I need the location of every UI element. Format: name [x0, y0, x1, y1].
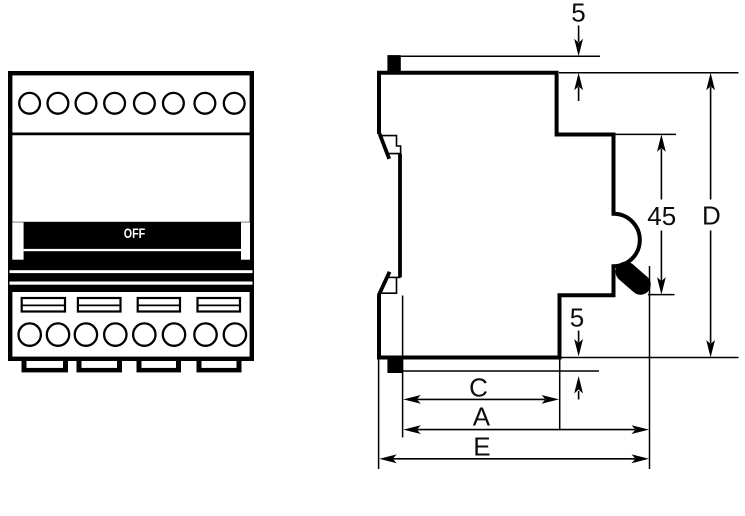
- svg-text:A: A: [473, 402, 491, 432]
- svg-text:D: D: [702, 201, 721, 231]
- svg-text:C: C: [469, 373, 488, 403]
- svg-text:OFF: OFF: [124, 226, 146, 241]
- svg-text:5: 5: [570, 303, 584, 333]
- svg-text:5: 5: [571, 0, 585, 28]
- svg-text:45: 45: [647, 201, 676, 231]
- svg-text:E: E: [473, 432, 490, 462]
